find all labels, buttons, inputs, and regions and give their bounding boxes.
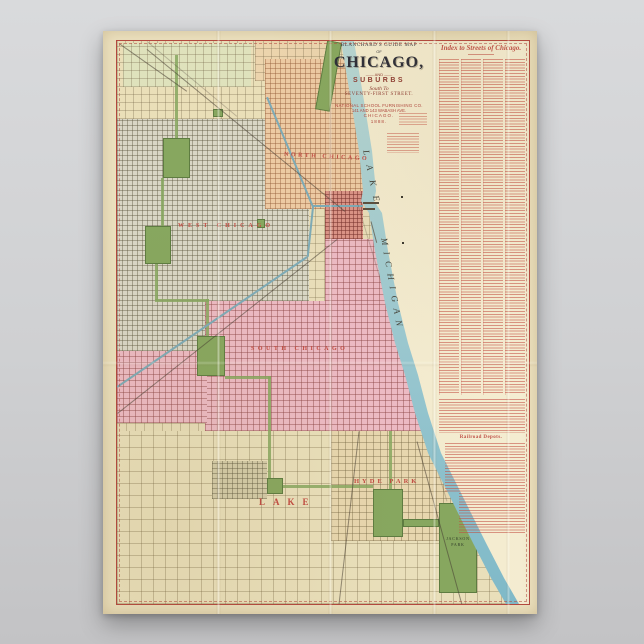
park-midway-plaisance — [403, 519, 439, 527]
index-column-4 — [505, 59, 525, 395]
region-northwest-green — [123, 43, 251, 87]
title-south-to-line: South To — [327, 86, 431, 93]
water-crib-north — [401, 196, 403, 198]
title-cartouche: BLANCHARD'S GUIDE MAP OF CHICAGO, —— AND… — [327, 43, 431, 125]
boulevard-garfield-blvd — [283, 485, 373, 488]
index-notes-paragraph — [439, 399, 525, 433]
publication-year: 1888. — [327, 119, 431, 125]
park-humboldt — [163, 138, 190, 178]
title-main: CHICAGO, — [327, 54, 431, 72]
railroad-depots-list-a — [445, 443, 525, 493]
label-jackson-park: JACKSON PARK — [439, 536, 477, 548]
street-index-panel: Index to Streets of Chicago. Railroad De… — [437, 44, 525, 536]
lake-note-legend — [387, 133, 419, 153]
boulevard-douglas-link-v — [206, 299, 209, 336]
label-town-of-lake: LAKE — [259, 497, 317, 507]
label-west-chicago: WEST CHICAGO — [178, 223, 274, 229]
park-washington — [373, 489, 403, 537]
boulevard-douglas-link-h — [155, 299, 209, 302]
boulevard-garfield-south — [155, 264, 158, 301]
street-index-title: Index to Streets of Chicago. — [437, 44, 525, 52]
label-hyde-park: HYDE PARK — [354, 478, 419, 485]
park-douglas — [197, 336, 225, 376]
region-south-division-west-wedge — [117, 351, 207, 423]
index-column-2 — [461, 59, 481, 395]
index-column-1 — [439, 59, 459, 395]
region-stockyards — [212, 461, 267, 499]
water-crib-south — [402, 242, 404, 244]
map-poster: LAKE MICHIGAN NORTH CHICAGO WEST CHICAGO… — [103, 31, 537, 614]
index-column-3 — [483, 59, 503, 395]
boulevard-western-ave — [268, 376, 271, 478]
railroad-depots-list-b — [459, 493, 525, 533]
boulevard-western-link-h — [225, 376, 271, 379]
park-gage — [267, 478, 283, 494]
boulevard-humboldt-garfield — [161, 178, 164, 226]
railroad-depots-header: Railroad Depots. — [437, 435, 525, 440]
title-suburbs-line: SUBURBS — [327, 77, 431, 86]
label-south-chicago: SOUTH CHICAGO — [251, 346, 348, 352]
title-street-line: SEVENTY-FIRST STREET. — [327, 92, 431, 98]
park-garfield — [145, 226, 171, 264]
index-ornament-rule — [468, 54, 494, 55]
